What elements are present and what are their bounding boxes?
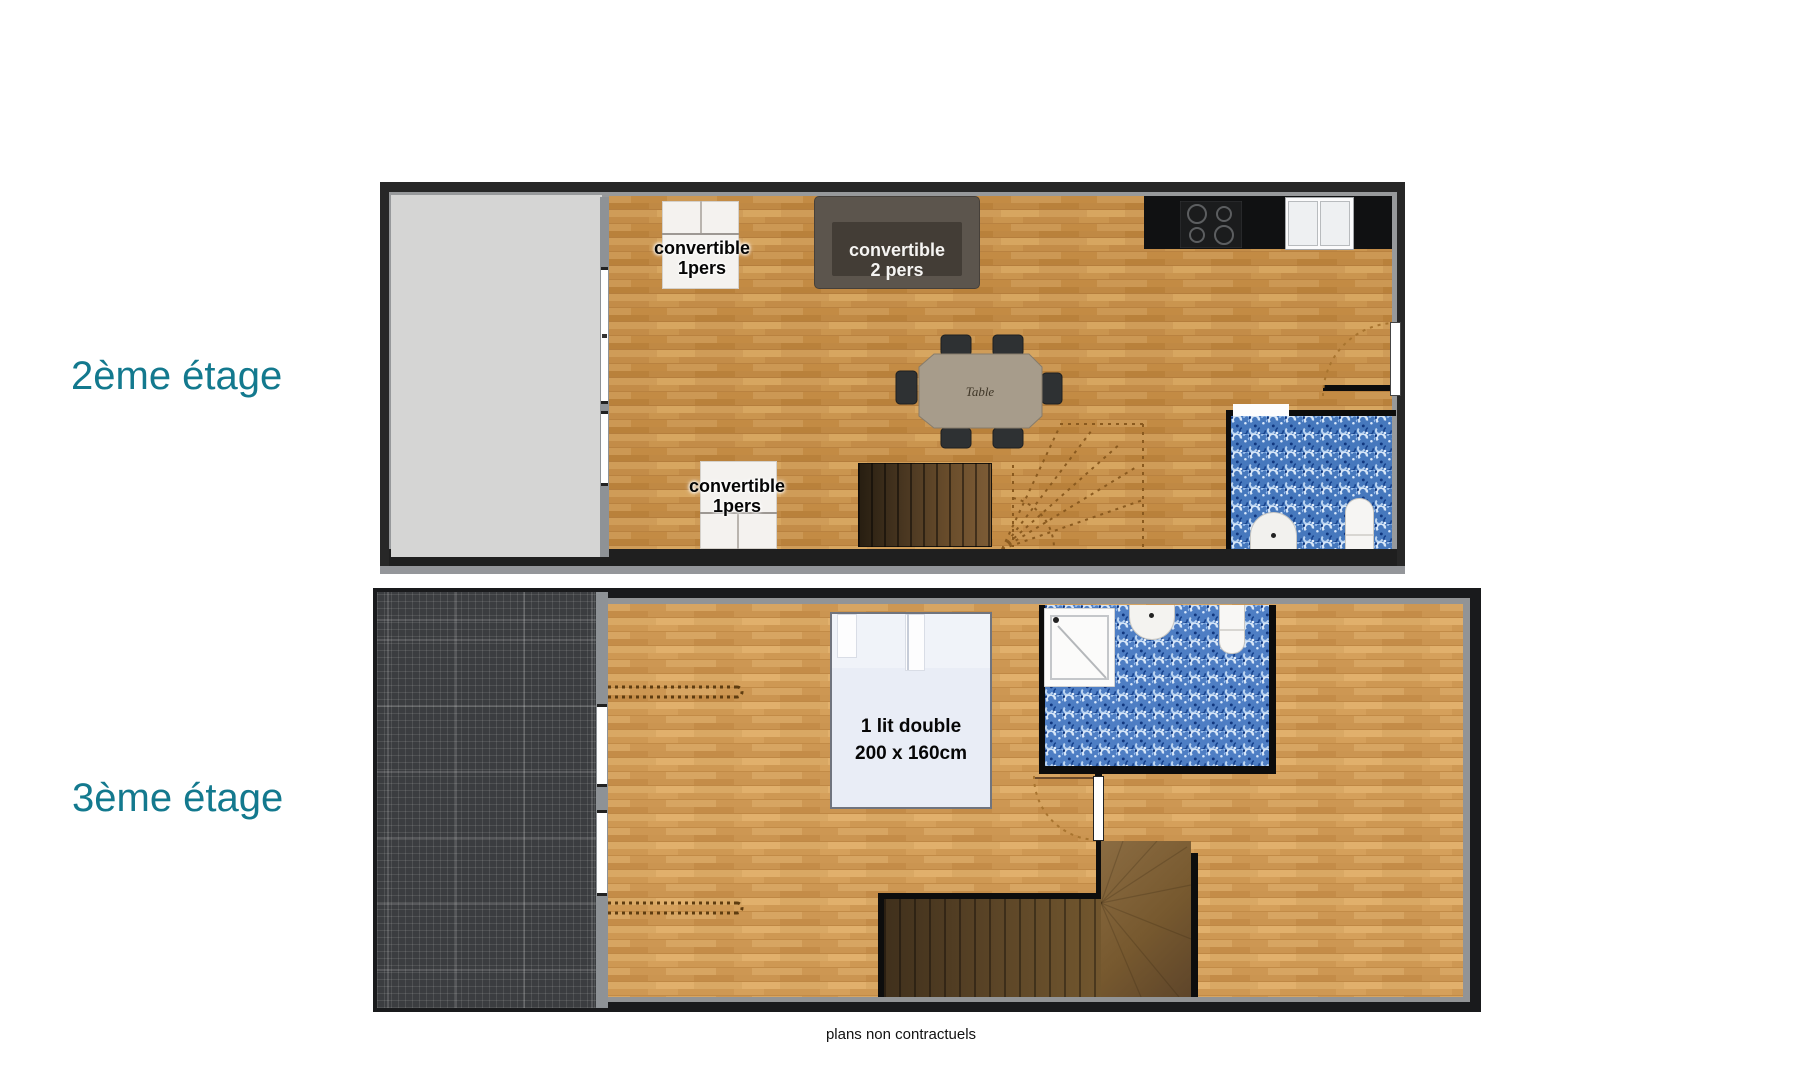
svg-text:Table: Table: [966, 384, 995, 399]
